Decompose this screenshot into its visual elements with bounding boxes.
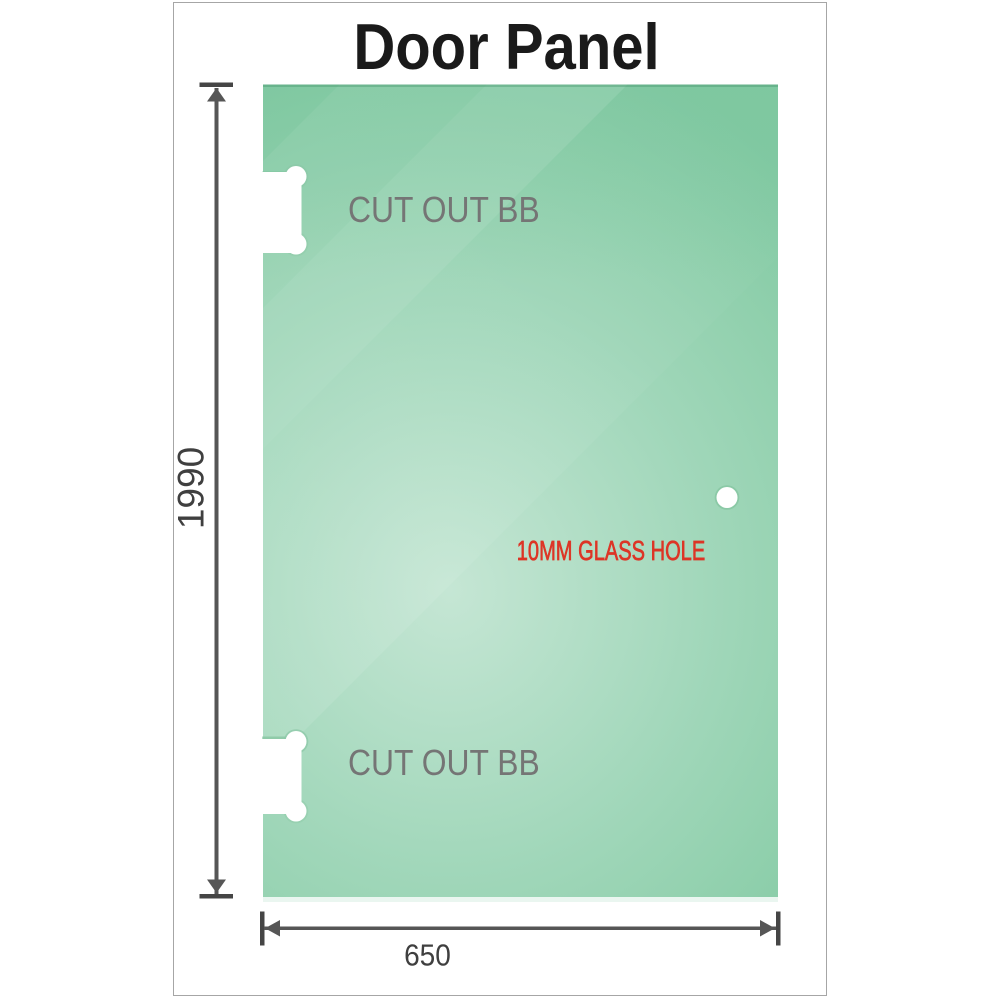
svg-text:CUT OUT BB: CUT OUT BB — [348, 190, 540, 230]
svg-text:1990: 1990 — [171, 447, 212, 529]
svg-text:10MM GLASS HOLE: 10MM GLASS HOLE — [517, 536, 705, 567]
svg-text:650: 650 — [404, 938, 451, 973]
svg-text:Door Panel: Door Panel — [353, 11, 659, 84]
svg-text:CUT OUT BB: CUT OUT BB — [348, 743, 540, 783]
